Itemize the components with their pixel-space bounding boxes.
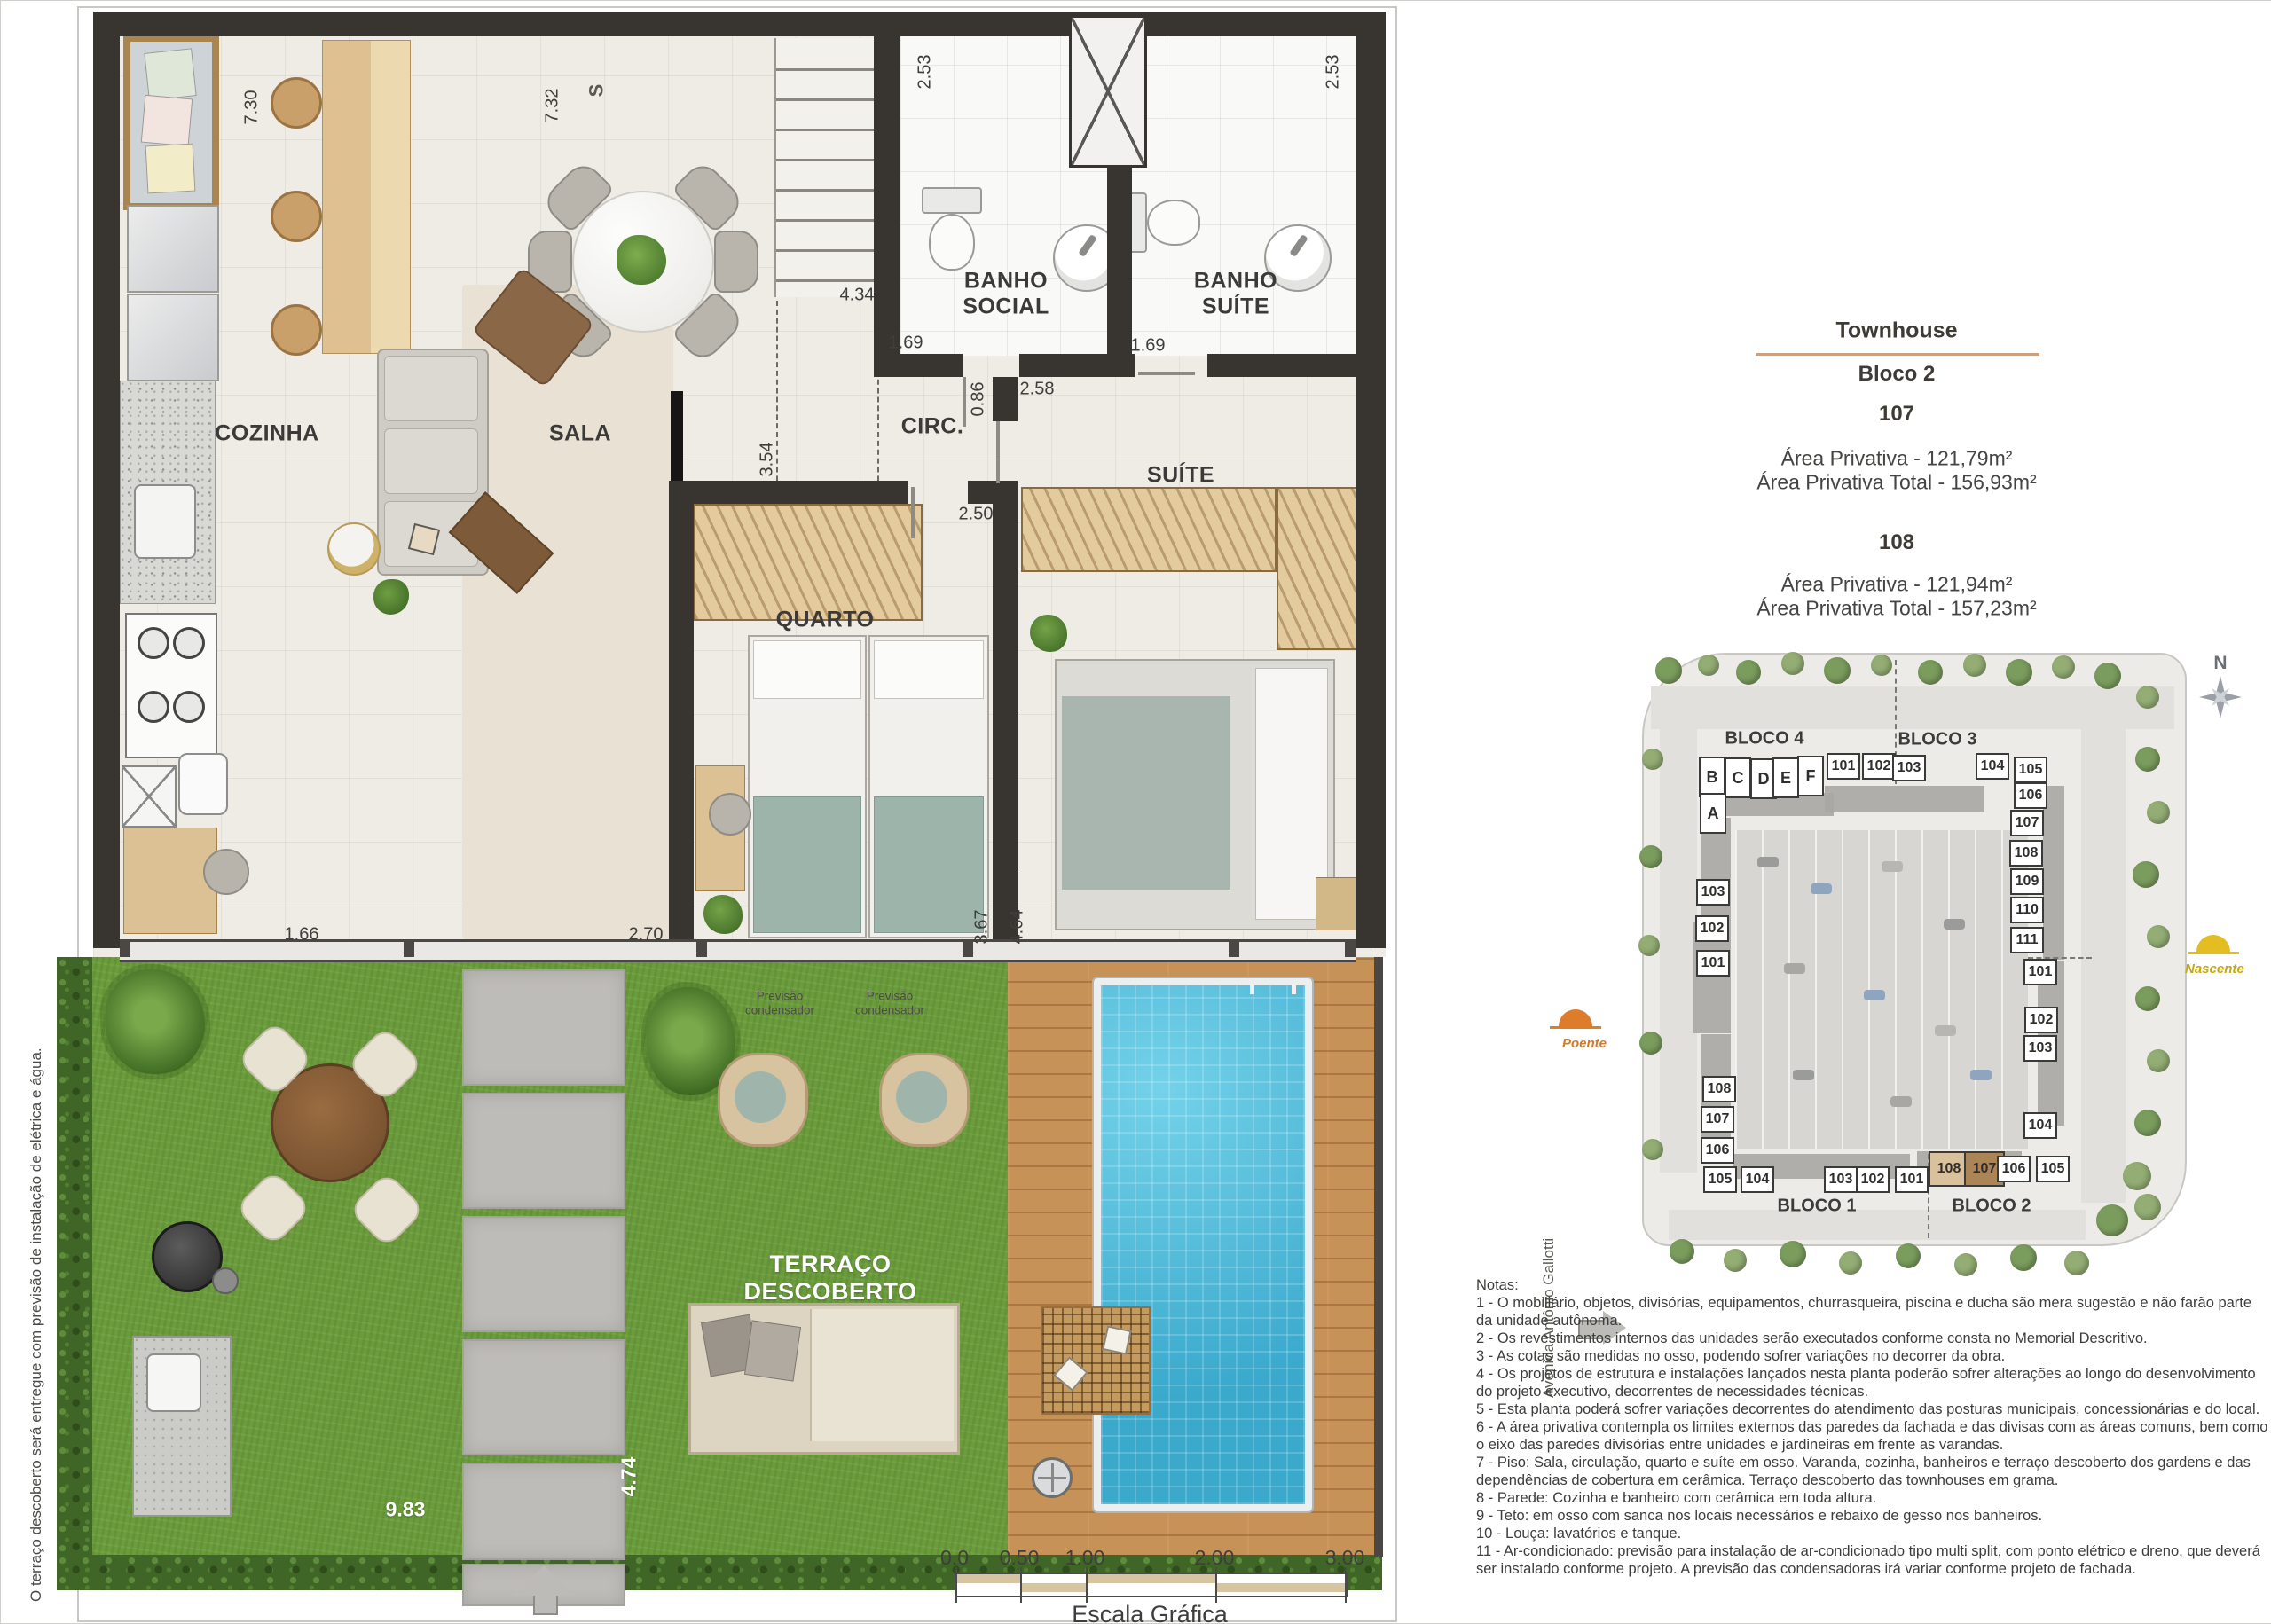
scale-tick [955, 1567, 957, 1603]
tree-icon [1639, 845, 1662, 868]
sunrise-label: Nascente [2185, 961, 2244, 977]
wall [93, 12, 120, 948]
floor-plant-icon [1030, 615, 1067, 652]
dimension-label: 1.69 [889, 333, 923, 354]
wall [669, 481, 908, 504]
scale-cell [1087, 1583, 1216, 1592]
site-tower-letter: C [1725, 757, 1751, 798]
door-leaf [911, 487, 915, 538]
scale-cell [1216, 1574, 1347, 1583]
building-mass [2043, 786, 2064, 960]
site-unit: 102 [1695, 915, 1729, 942]
terrace-label: TERRAÇO DESCOBERTO [743, 1251, 916, 1306]
table-plant-icon [617, 235, 666, 285]
scale-tick-label: 0.50 [1000, 1546, 1040, 1570]
outdoor-basin [146, 1353, 201, 1412]
tree-icon [2064, 1251, 2089, 1275]
tree-icon [1839, 1251, 1862, 1275]
site-unit: 102 [2024, 1007, 2058, 1033]
entrance-arrow-head [514, 1565, 574, 1596]
car-icon [1890, 1096, 1912, 1107]
unit-number: 107 [1879, 402, 1914, 427]
compass-icon [2199, 676, 2242, 723]
door-leaf [1138, 372, 1195, 375]
note-item: 11 - Ar-condicionado: previsão para inst… [1476, 1542, 2270, 1578]
site-tower-letter: B [1699, 757, 1725, 797]
road [2081, 706, 2126, 1203]
wall [874, 12, 900, 377]
site-unit: 101 [1895, 1166, 1929, 1193]
stair-tread [776, 98, 879, 101]
site-unit: 102 [1862, 753, 1896, 780]
unit-area: Área Privativa - 121,94m² [1781, 573, 2013, 597]
tree-icon [1954, 1253, 1977, 1276]
dining-chair [714, 231, 758, 293]
site-unit: 102 [1856, 1166, 1890, 1193]
living-rug [462, 285, 673, 939]
car-icon [1864, 990, 1885, 1000]
site-unit: 105 [1703, 1166, 1737, 1193]
dimension-label: 7.32 [543, 89, 563, 123]
kitchen-desk [123, 828, 217, 934]
lattice-side-table [1041, 1306, 1151, 1415]
room-label: BANHO SUÍTE [1194, 268, 1277, 319]
scale-bar-body [955, 1573, 1348, 1597]
dimension-label: 2.58 [1020, 380, 1055, 400]
scale-cell [1021, 1583, 1087, 1592]
sofa-cushion [384, 428, 478, 494]
dimension-label: 3.67 [972, 910, 993, 945]
wall [993, 483, 1018, 945]
bed-blanket [1062, 696, 1230, 890]
stepping-stone [462, 969, 625, 1086]
tree-icon [1724, 1249, 1747, 1272]
refrigerator [127, 205, 219, 293]
bed-pillows [753, 640, 861, 699]
site-unit: 103 [1824, 1166, 1858, 1193]
tree-icon [1824, 657, 1851, 684]
car-icon [1935, 1025, 1956, 1036]
stepping-stone [462, 1093, 625, 1209]
tree-icon [1655, 657, 1682, 684]
note-item: 8 - Parede: Cozinha e banheiro com cerâm… [1476, 1489, 2270, 1507]
daybed [688, 1303, 960, 1455]
toilet-bowl [929, 214, 975, 271]
room-label: BANHO SOCIAL [963, 268, 1049, 319]
decor-pillow [141, 95, 193, 147]
cooktop [125, 613, 217, 758]
unit-number: 108 [1879, 530, 1914, 555]
bedroom-closet [694, 504, 923, 621]
tree-icon [1963, 654, 1986, 677]
note-item: 6 - A área privativa contempla os limite… [1476, 1418, 2270, 1454]
decor-pillow [145, 144, 196, 194]
site-unit: 107 [1701, 1106, 1734, 1133]
site-unit: 103 [2023, 1035, 2057, 1062]
mullion [1229, 939, 1239, 957]
mullion [404, 939, 414, 957]
site-unit: 101 [1696, 950, 1730, 977]
tree-icon [2136, 686, 2159, 709]
site-tower-letter: A [1700, 793, 1726, 834]
dimension-label: 4.74 [617, 1457, 641, 1497]
mullion [696, 939, 707, 957]
scale-tick-labels: 0.00.501.002.003.00 [955, 1546, 1345, 1569]
scale-tick-label: 2.00 [1195, 1546, 1235, 1570]
daybed-pillow [744, 1320, 801, 1381]
wall [1356, 12, 1386, 948]
tree-icon [2010, 1244, 2037, 1271]
dimension-label: 4.34 [840, 286, 875, 306]
lounge-chair [879, 1053, 970, 1147]
mullion [120, 939, 130, 957]
site-unit: 107 [2010, 810, 2044, 836]
stair-tread [776, 249, 879, 252]
tree-icon [2052, 655, 2075, 679]
scale-cell [1021, 1574, 1087, 1583]
service-shaft [122, 765, 177, 828]
outdoor-sink-cabinet [132, 1336, 232, 1517]
room-label: QUARTO [776, 608, 875, 633]
scale-cell [956, 1583, 1021, 1592]
unit-area: Área Privativa - 121,79m² [1781, 447, 2013, 471]
site-unit: 105 [2036, 1156, 2070, 1182]
floor-plant-icon [703, 895, 743, 934]
sunset-label: Poente [1562, 1036, 1607, 1051]
condenser-label: Previsão condensador [745, 989, 814, 1016]
dimension-label: 1.69 [1131, 336, 1166, 357]
building-mass [1825, 786, 1984, 812]
suite-closet [1021, 487, 1277, 572]
site-unit: 106 [1997, 1156, 2031, 1182]
dimension-label: 7.30 [242, 90, 263, 125]
tree-icon [1670, 1239, 1694, 1264]
compass-north-label: N [2199, 653, 2242, 674]
car-icon [1970, 1070, 1992, 1080]
dimension-label: 3.54 [758, 443, 778, 477]
site-unit: 101 [1827, 753, 1860, 780]
notes-items: 1 - O mobiliário, objetos, divisórias, e… [1476, 1294, 2270, 1578]
site-unit: 103 [1892, 755, 1926, 781]
burner-icon [173, 627, 205, 659]
dimension-label: 9.83 [386, 1498, 426, 1522]
double-bed [1055, 659, 1335, 930]
toilet-bowl [1147, 200, 1200, 246]
sofa-cushion [384, 356, 478, 421]
wall [93, 12, 1386, 36]
wall [669, 481, 694, 945]
site-unit: 108 [1702, 1076, 1736, 1102]
scale-tick [1215, 1567, 1217, 1603]
burner-icon [138, 627, 169, 659]
bedroom-chair [709, 793, 751, 836]
tree-icon [1642, 749, 1663, 770]
pool [1094, 978, 1312, 1511]
stair-tread [776, 219, 879, 222]
car-icon [1757, 857, 1779, 867]
site-block-label: BLOCO 1 [1778, 1196, 1857, 1217]
mullion [1345, 939, 1356, 957]
entrance-arrow-icon [533, 1594, 558, 1615]
site-unit: 104 [2023, 1112, 2057, 1139]
site-unit: 106 [2014, 782, 2047, 809]
tree-icon [2147, 1049, 2170, 1072]
scale-tick-label: 3.00 [1325, 1546, 1365, 1570]
candle-tray [1053, 1356, 1088, 1391]
stair-tread [776, 129, 879, 131]
tree-icon [2006, 659, 2032, 686]
tree-icon [1642, 1139, 1663, 1160]
sunset-icon [1559, 1009, 1592, 1026]
stepping-stone [462, 1216, 625, 1332]
scale-caption: Escala Gráfica [1072, 1601, 1228, 1624]
notes-block: Notas: 1 - O mobiliário, objetos, divisó… [1476, 1276, 2270, 1578]
sunrise-icon [2196, 935, 2230, 952]
elevator-shaft [1069, 15, 1147, 168]
tree-icon [2094, 663, 2121, 689]
dimension-label: 1.66 [285, 925, 319, 945]
kitchen-sideboard [123, 35, 219, 210]
bar-stool [271, 304, 322, 356]
site-tower-letter: E [1772, 757, 1799, 798]
door-leaf [996, 421, 1000, 483]
car-icon [1882, 861, 1903, 872]
condenser-label: Previsão condensador [855, 989, 924, 1016]
scale-tick-label: 1.00 [1065, 1546, 1105, 1570]
divider [1756, 353, 2039, 356]
decor-pillow [144, 48, 196, 100]
room-label: SUÍTE [1147, 463, 1214, 489]
stair-tread [776, 68, 879, 71]
tree-icon [2123, 1162, 2151, 1190]
tree-icon [1638, 935, 1660, 956]
note-item: 9 - Teto: em osso com sanca nos locais n… [1476, 1507, 2270, 1525]
note-item: 1 - O mobiliário, objetos, divisórias, e… [1476, 1294, 2270, 1330]
scale-cell [1216, 1583, 1347, 1592]
road [1660, 729, 1697, 1173]
single-bed [748, 635, 867, 938]
tree-icon [1918, 660, 1943, 685]
car-icon [1944, 919, 1965, 930]
site-block-label: BLOCO 3 [1898, 730, 1977, 750]
site-unit: 104 [1976, 753, 2009, 780]
terrace-boundary-wall [1374, 957, 1383, 1557]
staircase [774, 38, 879, 297]
tree-icon [1780, 1241, 1806, 1267]
dimension-label: 2.53 [915, 55, 936, 90]
site-block-label: BLOCO 4 [1725, 729, 1804, 749]
room-label: SALA [549, 421, 611, 447]
tree-icon [1736, 660, 1761, 685]
hedge-left [57, 957, 92, 1589]
desk-chair [203, 849, 249, 895]
side-disclaimer: O terraço descoberto será entregue com p… [28, 569, 45, 1602]
car-icon [1784, 963, 1805, 974]
unit-area-total: Área Privativa Total - 157,23m² [1756, 597, 2036, 621]
stepping-stone [462, 1339, 625, 1455]
tree-icon [1781, 652, 1804, 675]
stair-tread [776, 159, 879, 161]
floorplan-sheet: S [0, 0, 2271, 1624]
pool-ladder-icon [1250, 984, 1296, 994]
notes-title: Notas: [1476, 1276, 2270, 1294]
freezer [127, 294, 219, 381]
note-item: 2 - Os revestimentos internos das unidad… [1476, 1330, 2270, 1347]
site-unit: 103 [1696, 879, 1730, 906]
car-icon [1811, 883, 1832, 894]
suite-closet [1277, 487, 1363, 650]
tree-icon [2133, 861, 2159, 888]
tree-icon [1896, 1243, 1921, 1268]
tree-icon [2096, 1204, 2128, 1236]
stairs-up-marker: S [585, 84, 608, 98]
note-item: 7 - Piso: Sala, circulação, quarto e suí… [1476, 1454, 2270, 1489]
note-item: 10 - Louça: lavatórios e tanque. [1476, 1525, 2270, 1542]
note-item: 4 - Os projetos de estrutura e instalaçõ… [1476, 1365, 2270, 1400]
room-label: COZINHA [215, 421, 318, 447]
lounge-chair [718, 1053, 808, 1147]
dimension-label: 4.64 [1008, 910, 1028, 945]
laundry-tub [178, 753, 228, 815]
scale-cell [1087, 1574, 1216, 1583]
site-unit: 106 [1701, 1137, 1734, 1164]
bed-blanket [874, 796, 984, 933]
single-bed [868, 635, 989, 938]
site-unit: 109 [2010, 868, 2044, 895]
site-unit: 105 [2014, 757, 2047, 783]
side-table [327, 522, 381, 576]
toilet-icon [922, 187, 982, 214]
stair-tread [776, 279, 879, 282]
scale-tick [1345, 1567, 1347, 1603]
tree-icon [1698, 655, 1719, 676]
car-icon [1793, 1070, 1814, 1080]
floor-plan: S [1, 1, 1394, 1623]
block-title: Bloco 2 [1858, 362, 1936, 387]
scale-tick [1086, 1567, 1088, 1603]
kitchen-sink [134, 484, 196, 559]
burner-icon [138, 691, 169, 723]
tree-icon [2135, 986, 2160, 1011]
site-block-label: BLOCO 2 [1953, 1196, 2031, 1217]
site-tower-letter: F [1797, 756, 1824, 796]
wall [1019, 354, 1135, 377]
wall [968, 481, 1018, 504]
dimension-label: 2.53 [1324, 55, 1344, 90]
bar-stool [271, 191, 322, 242]
note-item: 5 - Esta planta poderá sofrer variações … [1476, 1400, 2270, 1418]
tree-icon [1639, 1032, 1662, 1055]
type-title: Townhouse [1835, 318, 1957, 344]
stair-tread [776, 189, 879, 192]
daybed-mattress [810, 1309, 954, 1441]
unit-area-total: Área Privativa Total - 156,93m² [1756, 471, 2036, 495]
scale-tick [1020, 1567, 1022, 1603]
bar-counter [322, 40, 411, 354]
tree-icon [2147, 925, 2170, 948]
dimension-label: 2.70 [629, 925, 664, 945]
graphic-scale: 0.00.501.002.003.00 Escala Gráfica [955, 1546, 1345, 1622]
wall [874, 354, 963, 377]
tree-icon [2134, 1194, 2161, 1220]
bed-pillows [874, 640, 984, 699]
tree-icon [2147, 801, 2170, 824]
site-unit: 104 [1741, 1166, 1774, 1193]
tree-icon [1871, 655, 1892, 676]
barbecue-side-tray [212, 1267, 239, 1294]
dimension-label: 2.50 [959, 505, 994, 525]
scale-tick-label: 0.0 [940, 1546, 969, 1570]
site-unit: 108 [2009, 840, 2043, 867]
site-unit: 111 [2010, 927, 2044, 953]
tree-icon [2135, 747, 2160, 772]
stepping-stone [462, 1463, 625, 1560]
wall [1207, 354, 1356, 377]
palm-plant [106, 969, 205, 1074]
note-item: 3 - As cotas são medidas no osso, podend… [1476, 1347, 2270, 1365]
room-label: CIRC. [901, 414, 964, 440]
site-unit: 110 [2010, 897, 2044, 923]
wall [993, 377, 1018, 421]
site-unit: 101 [2023, 959, 2057, 985]
dimension-label: 0.86 [969, 382, 989, 417]
bed-blanket [753, 796, 861, 933]
tree-icon [2134, 1110, 2161, 1136]
scale-cell [956, 1574, 1021, 1583]
site-plan: BCDEFA1011021031041051061071081091101111… [1527, 653, 2271, 1362]
candle-tray [1102, 1325, 1131, 1354]
outdoor-shower-icon [1032, 1457, 1073, 1498]
burner-icon [173, 691, 205, 723]
bar-stool [271, 77, 322, 129]
